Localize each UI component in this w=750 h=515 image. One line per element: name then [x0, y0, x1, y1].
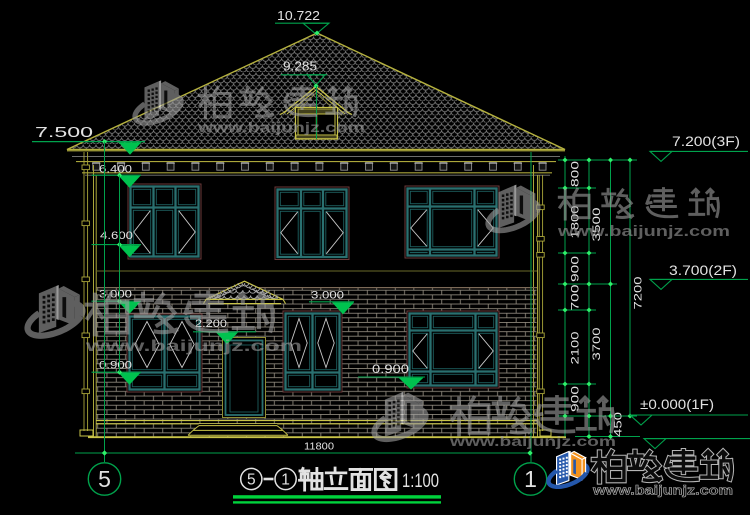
- svg-text:1: 1: [281, 472, 290, 489]
- svg-text:3.000: 3.000: [311, 290, 344, 302]
- svg-text:10.722: 10.722: [277, 8, 320, 23]
- svg-text:±0.000(1F): ±0.000(1F): [640, 397, 714, 412]
- svg-text:www.baijunjz.com: www.baijunjz.com: [592, 483, 733, 498]
- svg-text:900: 900: [570, 386, 582, 412]
- svg-text:700: 700: [570, 285, 582, 311]
- svg-text:7.500: 7.500: [35, 125, 93, 141]
- svg-text:5: 5: [98, 466, 111, 492]
- svg-text:900: 900: [570, 256, 582, 282]
- svg-text:0.900: 0.900: [372, 362, 409, 376]
- svg-text:www.baijunjz.com: www.baijunjz.com: [84, 338, 302, 355]
- svg-text:1: 1: [524, 466, 537, 492]
- svg-text:www.baijunjz.com: www.baijunjz.com: [197, 119, 365, 135]
- svg-text:7200: 7200: [633, 277, 645, 310]
- svg-text:9.285: 9.285: [283, 60, 317, 74]
- svg-text:www.baijunjz.com: www.baijunjz.com: [449, 433, 616, 449]
- svg-text:3700: 3700: [591, 328, 603, 361]
- svg-text:5: 5: [247, 472, 256, 489]
- svg-text:3.700(2F): 3.700(2F): [669, 263, 737, 278]
- svg-text:0.900: 0.900: [99, 360, 132, 372]
- svg-text:1:100: 1:100: [402, 470, 439, 492]
- svg-text:2100: 2100: [570, 332, 582, 365]
- svg-text:6.400: 6.400: [99, 164, 132, 176]
- svg-text:800: 800: [570, 161, 582, 187]
- svg-text:www.baijunjz.com: www.baijunjz.com: [557, 224, 730, 240]
- svg-text:3.000: 3.000: [99, 289, 132, 301]
- svg-text:11800: 11800: [304, 441, 334, 453]
- svg-text:7.200(3F): 7.200(3F): [672, 134, 740, 149]
